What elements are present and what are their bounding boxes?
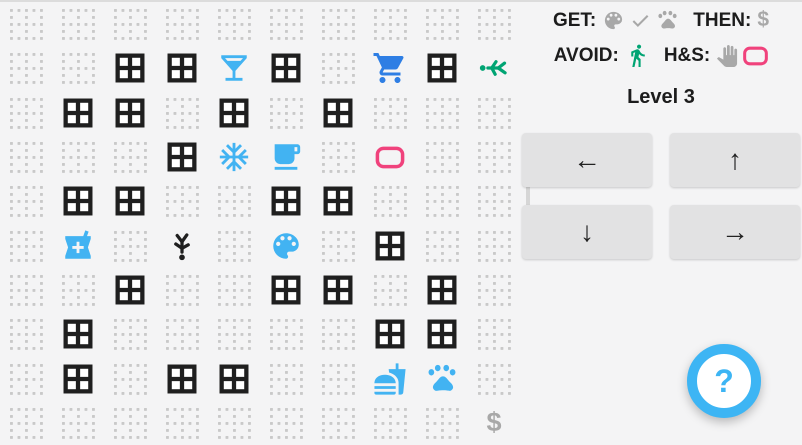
- cell-empty: [52, 46, 104, 90]
- cell-empty: [312, 46, 364, 90]
- dots-pattern-icon: [9, 318, 43, 350]
- cell-pink-rect: [364, 135, 416, 179]
- cell-empty: [0, 223, 52, 267]
- martini-icon: [217, 51, 251, 85]
- cell-empty: [260, 91, 312, 135]
- cell-empty: [468, 356, 520, 400]
- cell-empty: [0, 356, 52, 400]
- dots-pattern-icon: [113, 141, 147, 173]
- cell-empty: [312, 223, 364, 267]
- dots-pattern-icon: [425, 230, 459, 262]
- cell-snowflake: [208, 135, 260, 179]
- window-icon: [423, 271, 461, 309]
- dots-pattern-icon: [269, 363, 303, 395]
- window-icon: [267, 271, 305, 309]
- dots-pattern-icon: [61, 274, 95, 306]
- dots-pattern-icon: [113, 363, 147, 395]
- cell-window: [156, 46, 208, 90]
- cell-empty: [416, 91, 468, 135]
- dots-pattern-icon: [113, 407, 147, 439]
- dots-pattern-icon: [477, 318, 511, 350]
- avoid-label: AVOID:: [554, 45, 619, 67]
- dots-pattern-icon: [217, 185, 251, 217]
- cell-empty: [104, 401, 156, 445]
- cell-empty: [416, 135, 468, 179]
- dots-pattern-icon: [269, 8, 303, 40]
- cell-empty: [104, 2, 156, 46]
- dots-pattern-icon: [165, 274, 199, 306]
- cell-empty: [312, 135, 364, 179]
- cell-empty: [52, 268, 104, 312]
- window-icon: [59, 182, 97, 220]
- dots-pattern-icon: [165, 407, 199, 439]
- dots-pattern-icon: [165, 97, 199, 129]
- cell-empty: [468, 223, 520, 267]
- cell-martini: [208, 46, 260, 90]
- cell-empty: [0, 268, 52, 312]
- window-icon: [267, 182, 305, 220]
- cell-window: [52, 91, 104, 135]
- coffee-icon: [269, 140, 303, 174]
- right-arrow-button[interactable]: →: [670, 205, 800, 259]
- dots-pattern-icon: [217, 230, 251, 262]
- cell-empty: [156, 2, 208, 46]
- cell-empty: [260, 312, 312, 356]
- cell-window: [208, 91, 260, 135]
- cell-empty: [468, 135, 520, 179]
- palette-icon: [602, 9, 625, 32]
- cell-empty: [208, 2, 260, 46]
- game-board: $: [0, 2, 520, 445]
- dots-pattern-icon: [321, 407, 355, 439]
- cell-fastfood: [364, 356, 416, 400]
- dots-pattern-icon: [9, 274, 43, 306]
- dots-pattern-icon: [425, 97, 459, 129]
- cell-window: [312, 268, 364, 312]
- cell-empty: [260, 356, 312, 400]
- cell-empty: [156, 312, 208, 356]
- window-icon: [423, 315, 461, 353]
- dots-pattern-icon: [9, 141, 43, 173]
- dots-pattern-icon: [425, 141, 459, 173]
- falling-person-left-icon: [477, 51, 511, 85]
- cell-window: [52, 312, 104, 356]
- dots-pattern-icon: [113, 318, 147, 350]
- dots-pattern-icon: [61, 52, 95, 84]
- pharmacy-icon: [61, 229, 95, 263]
- check-icon: [630, 10, 651, 31]
- cell-empty: [468, 179, 520, 223]
- cell-window: [104, 91, 156, 135]
- dots-pattern-icon: [321, 141, 355, 173]
- dots-pattern-icon: [373, 274, 407, 306]
- cell-empty: [104, 312, 156, 356]
- window-icon: [423, 49, 461, 87]
- dollar-icon: $: [757, 9, 769, 32]
- cell-empty: [468, 268, 520, 312]
- left-arrow-button[interactable]: ←: [522, 133, 652, 187]
- dots-pattern-icon: [269, 318, 303, 350]
- cell-window: [208, 356, 260, 400]
- dots-pattern-icon: [373, 185, 407, 217]
- pink-rect-icon: [743, 46, 768, 66]
- cell-window: [416, 312, 468, 356]
- left-arrow-icon: ←: [573, 146, 601, 174]
- cell-empty: [52, 401, 104, 445]
- avoid-line: AVOID: H&S:: [520, 43, 802, 68]
- cell-empty: [104, 135, 156, 179]
- hs-label: H&S:: [664, 45, 710, 67]
- cell-window: [312, 179, 364, 223]
- palette-icon: [269, 229, 303, 263]
- cell-cart: [364, 46, 416, 90]
- up-arrow-icon: ↑: [728, 146, 742, 174]
- falling-person-down-icon: [165, 229, 199, 263]
- pink-rect-icon: [375, 146, 405, 169]
- dots-pattern-icon: [217, 274, 251, 306]
- dots-pattern-icon: [477, 185, 511, 217]
- cell-pharmacy: [52, 223, 104, 267]
- get-label: GET:: [553, 10, 596, 32]
- cell-empty: [260, 2, 312, 46]
- cell-empty: [364, 268, 416, 312]
- cell-empty: [156, 401, 208, 445]
- dots-pattern-icon: [425, 185, 459, 217]
- dots-pattern-icon: [9, 97, 43, 129]
- cell-empty: [208, 401, 260, 445]
- dots-pattern-icon: [9, 230, 43, 262]
- walk-icon: [625, 43, 650, 68]
- cell-empty: [0, 401, 52, 445]
- dots-pattern-icon: [425, 407, 459, 439]
- dots-pattern-icon: [61, 141, 95, 173]
- cell-empty: [0, 91, 52, 135]
- cell-empty: [312, 356, 364, 400]
- dots-pattern-icon: [113, 8, 147, 40]
- cell-empty: [260, 401, 312, 445]
- cell-empty: [52, 135, 104, 179]
- dots-pattern-icon: [373, 97, 407, 129]
- dots-pattern-icon: [165, 318, 199, 350]
- window-icon: [111, 49, 149, 87]
- cell-empty: [364, 2, 416, 46]
- dots-pattern-icon: [9, 407, 43, 439]
- window-icon: [371, 227, 409, 265]
- cell-empty: [416, 223, 468, 267]
- dots-pattern-icon: [477, 274, 511, 306]
- cell-window: [104, 268, 156, 312]
- right-arrow-icon: →: [721, 218, 749, 246]
- window-icon: [111, 94, 149, 132]
- avoid-items: [625, 43, 650, 68]
- dots-pattern-icon: [61, 8, 95, 40]
- window-icon: [215, 360, 253, 398]
- hs-items: [716, 45, 768, 67]
- dots-pattern-icon: [321, 363, 355, 395]
- cart-icon: [372, 50, 408, 86]
- dots-pattern-icon: [321, 52, 355, 84]
- cell-empty: [364, 91, 416, 135]
- cell-empty: [468, 2, 520, 46]
- cell-empty: [416, 2, 468, 46]
- dots-pattern-icon: [321, 230, 355, 262]
- cell-window: [104, 46, 156, 90]
- then-label: THEN:: [693, 10, 751, 32]
- cell-person-down: [156, 223, 208, 267]
- dots-pattern-icon: [61, 407, 95, 439]
- cell-window: [260, 268, 312, 312]
- cell-window: [52, 356, 104, 400]
- help-label: ?: [714, 365, 734, 397]
- cell-person-left: [468, 46, 520, 90]
- dots-pattern-icon: [425, 8, 459, 40]
- cell-empty: [104, 356, 156, 400]
- cell-empty: [416, 401, 468, 445]
- cell-window: [156, 135, 208, 179]
- cell-empty: [156, 179, 208, 223]
- cell-empty: [0, 312, 52, 356]
- cell-empty: [0, 46, 52, 90]
- cell-window: [104, 179, 156, 223]
- window-icon: [319, 94, 357, 132]
- dots-pattern-icon: [9, 185, 43, 217]
- up-arrow-button[interactable]: ↑: [670, 133, 800, 187]
- cell-window: [364, 312, 416, 356]
- dots-pattern-icon: [477, 363, 511, 395]
- window-icon: [163, 138, 201, 176]
- window-icon: [215, 94, 253, 132]
- down-arrow-button[interactable]: ↓: [522, 205, 652, 259]
- dots-pattern-icon: [9, 52, 43, 84]
- cell-empty: [208, 312, 260, 356]
- dots-pattern-icon: [269, 97, 303, 129]
- window-icon: [267, 49, 305, 87]
- window-icon: [111, 271, 149, 309]
- cell-empty: [52, 2, 104, 46]
- dots-pattern-icon: [373, 8, 407, 40]
- cell-empty: [468, 312, 520, 356]
- window-icon: [163, 360, 201, 398]
- cell-window: [156, 356, 208, 400]
- dots-pattern-icon: [9, 363, 43, 395]
- help-button[interactable]: ?: [687, 344, 761, 418]
- side-panel: GET: THEN: $ AVOID: H&S: Level 3 ←↑↓→ ?: [520, 2, 802, 445]
- cell-empty: [0, 135, 52, 179]
- window-icon: [59, 360, 97, 398]
- paw-icon: [656, 9, 679, 32]
- direction-controls: ←↑↓→: [522, 133, 800, 259]
- cell-empty: [156, 91, 208, 135]
- window-icon: [319, 271, 357, 309]
- dots-pattern-icon: [269, 407, 303, 439]
- cell-paw: [416, 356, 468, 400]
- dots-pattern-icon: [113, 230, 147, 262]
- cell-window: [312, 91, 364, 135]
- cell-empty: [312, 312, 364, 356]
- dots-pattern-icon: [373, 407, 407, 439]
- cell-empty: [0, 2, 52, 46]
- dots-pattern-icon: [321, 8, 355, 40]
- get-items: [602, 9, 679, 32]
- cell-window: [416, 268, 468, 312]
- cell-empty: [364, 401, 416, 445]
- dots-pattern-icon: [477, 230, 511, 262]
- cell-palette: [260, 223, 312, 267]
- cell-empty: [208, 223, 260, 267]
- fastfood-icon: [373, 362, 407, 396]
- then-items: $: [757, 9, 769, 32]
- dots-pattern-icon: [477, 8, 511, 40]
- dots-pattern-icon: [165, 8, 199, 40]
- cell-empty: [0, 179, 52, 223]
- hand-icon: [716, 45, 738, 67]
- window-icon: [371, 315, 409, 353]
- dots-pattern-icon: [165, 185, 199, 217]
- cell-empty: [208, 179, 260, 223]
- dots-pattern-icon: [321, 318, 355, 350]
- cell-window: [260, 46, 312, 90]
- dots-pattern-icon: [9, 8, 43, 40]
- cell-window: [364, 223, 416, 267]
- dots-pattern-icon: [217, 407, 251, 439]
- window-icon: [163, 49, 201, 87]
- down-arrow-icon: ↓: [580, 218, 594, 246]
- cell-empty: [416, 179, 468, 223]
- dollar-icon: $: [486, 409, 501, 436]
- window-icon: [319, 182, 357, 220]
- cell-empty: [312, 2, 364, 46]
- cell-coffee: [260, 135, 312, 179]
- cell-empty: [468, 91, 520, 135]
- cell-window: [260, 179, 312, 223]
- window-icon: [59, 315, 97, 353]
- cell-dollar: $: [468, 401, 520, 445]
- dots-pattern-icon: [477, 97, 511, 129]
- paw-icon: [425, 362, 459, 396]
- goal-line: GET: THEN: $: [520, 9, 802, 32]
- cell-empty: [312, 401, 364, 445]
- snowflake-icon: [217, 140, 251, 174]
- cell-window: [52, 179, 104, 223]
- dots-pattern-icon: [477, 141, 511, 173]
- window-icon: [111, 182, 149, 220]
- cell-empty: [156, 268, 208, 312]
- cell-window: [416, 46, 468, 90]
- app-root: $ GET: THEN: $ AVOID: H&S: Level 3 ←↑↓→ …: [0, 0, 802, 445]
- cell-empty: [104, 223, 156, 267]
- cell-empty: [364, 179, 416, 223]
- level-label: Level 3: [520, 86, 802, 109]
- window-icon: [59, 94, 97, 132]
- cell-empty: [208, 268, 260, 312]
- dots-pattern-icon: [217, 318, 251, 350]
- dots-pattern-icon: [217, 8, 251, 40]
